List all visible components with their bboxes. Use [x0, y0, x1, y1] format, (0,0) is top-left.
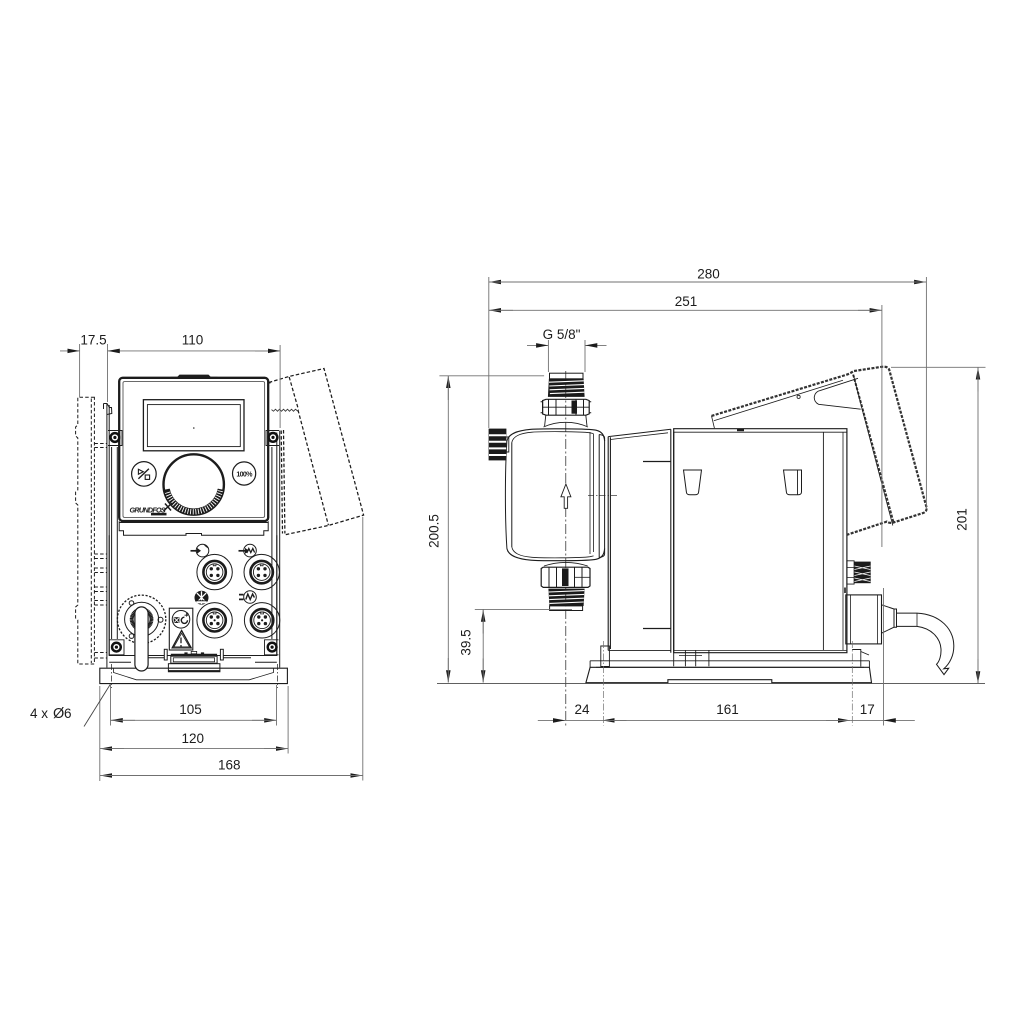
svg-text:17: 17 — [860, 702, 875, 717]
svg-text:201: 201 — [955, 508, 970, 531]
svg-text:17.5: 17.5 — [80, 333, 106, 348]
svg-text:G 5/8": G 5/8" — [543, 327, 581, 342]
svg-text:Ø: Ø — [53, 706, 64, 722]
svg-text:105: 105 — [179, 702, 202, 717]
svg-text:39.5: 39.5 — [459, 629, 474, 655]
svg-text:200.5: 200.5 — [427, 514, 442, 548]
svg-text:4 x: 4 x — [30, 706, 48, 721]
svg-text:110: 110 — [182, 333, 204, 348]
svg-text:6: 6 — [64, 706, 72, 721]
svg-text:161: 161 — [716, 702, 739, 717]
svg-text:251: 251 — [675, 294, 698, 309]
svg-text:24: 24 — [574, 702, 590, 717]
svg-text:120: 120 — [182, 731, 205, 746]
svg-text:168: 168 — [218, 758, 241, 773]
svg-text:100%: 100% — [236, 472, 253, 479]
svg-text:280: 280 — [697, 266, 720, 281]
